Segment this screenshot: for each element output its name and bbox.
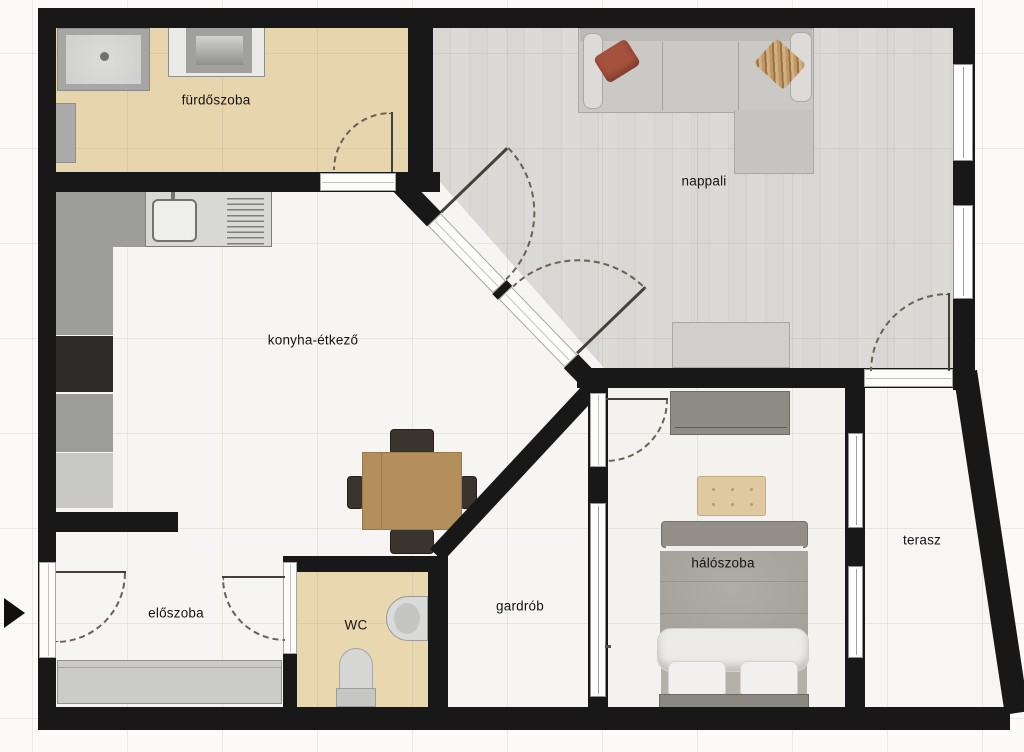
wall-top <box>38 8 975 28</box>
door-leaf-terrace <box>948 293 950 371</box>
window-living-1 <box>953 64 973 161</box>
sliding-door-wardrobe <box>590 503 606 697</box>
room-label-gardrob: gardrób <box>496 599 544 614</box>
window-bedroom-1 <box>848 433 863 528</box>
wall-wc-east <box>428 556 448 708</box>
door-frame-bathroom <box>320 173 396 191</box>
room-label-wc: WC <box>345 618 368 633</box>
wall-bedroom-terrace <box>845 383 865 708</box>
door-frame-wc <box>283 562 297 654</box>
door-leaf-bathroom <box>391 112 393 172</box>
wall-bottom <box>38 707 1010 730</box>
room-label-nappali: nappali <box>682 174 727 189</box>
kitchen-counter-left-lower <box>56 394 113 452</box>
room-label-konyha-etkezo: konyha-étkező <box>268 333 358 348</box>
shower-drain-icon <box>100 52 109 61</box>
kitchen-sink-bowl <box>152 199 197 242</box>
room-label-eloszoba: előszoba <box>148 606 204 621</box>
room-label-haloszoba: hálószoba <box>691 556 754 571</box>
room-label-furdoszoba: fürdőszoba <box>182 93 251 108</box>
door-frame-bedroom <box>590 393 606 467</box>
bedroom-dresser <box>670 391 790 435</box>
wall-hall-stub <box>38 512 178 532</box>
room-label-terasz: terasz <box>903 533 941 548</box>
window-living-2 <box>953 205 973 299</box>
wc-toilet-bowl <box>339 648 373 692</box>
hallway-sideboard <box>57 660 282 704</box>
kitchen-faucet-icon <box>171 192 175 201</box>
wall-bathroom-right <box>408 28 433 174</box>
bed-bench-cushion <box>697 476 766 516</box>
kitchen-counter-left <box>56 192 113 335</box>
kitchen-drawer-vents <box>227 198 264 245</box>
dining-chair-south <box>390 529 434 554</box>
kitchen-stove <box>56 336 113 392</box>
wall-wc-north <box>283 556 448 572</box>
bathtub-basin <box>196 36 243 65</box>
floor-plan-canvas: fürdőszoba nappali konyha-étkező előszob… <box>0 0 1024 752</box>
tv-stand <box>672 322 790 368</box>
wc-sink <box>386 596 428 641</box>
sofa-cushion-seam-2 <box>738 42 739 110</box>
bed-foot-frame <box>661 521 808 548</box>
entrance-arrow-icon <box>4 598 25 628</box>
dining-table <box>362 452 462 530</box>
kitchen-cabinet-light <box>56 453 113 508</box>
wc-toilet-tank <box>336 688 376 707</box>
bed-pillow-left <box>668 661 726 698</box>
sofa-cushion-seam-1 <box>662 42 663 110</box>
sliding-door-handle-icon <box>605 645 611 648</box>
door-frame-entrance <box>39 562 56 658</box>
window-bedroom-2 <box>848 566 863 658</box>
door-frame-terrace <box>864 369 953 387</box>
sofa-chaise <box>734 110 814 174</box>
bed-pillow-right <box>740 661 798 698</box>
